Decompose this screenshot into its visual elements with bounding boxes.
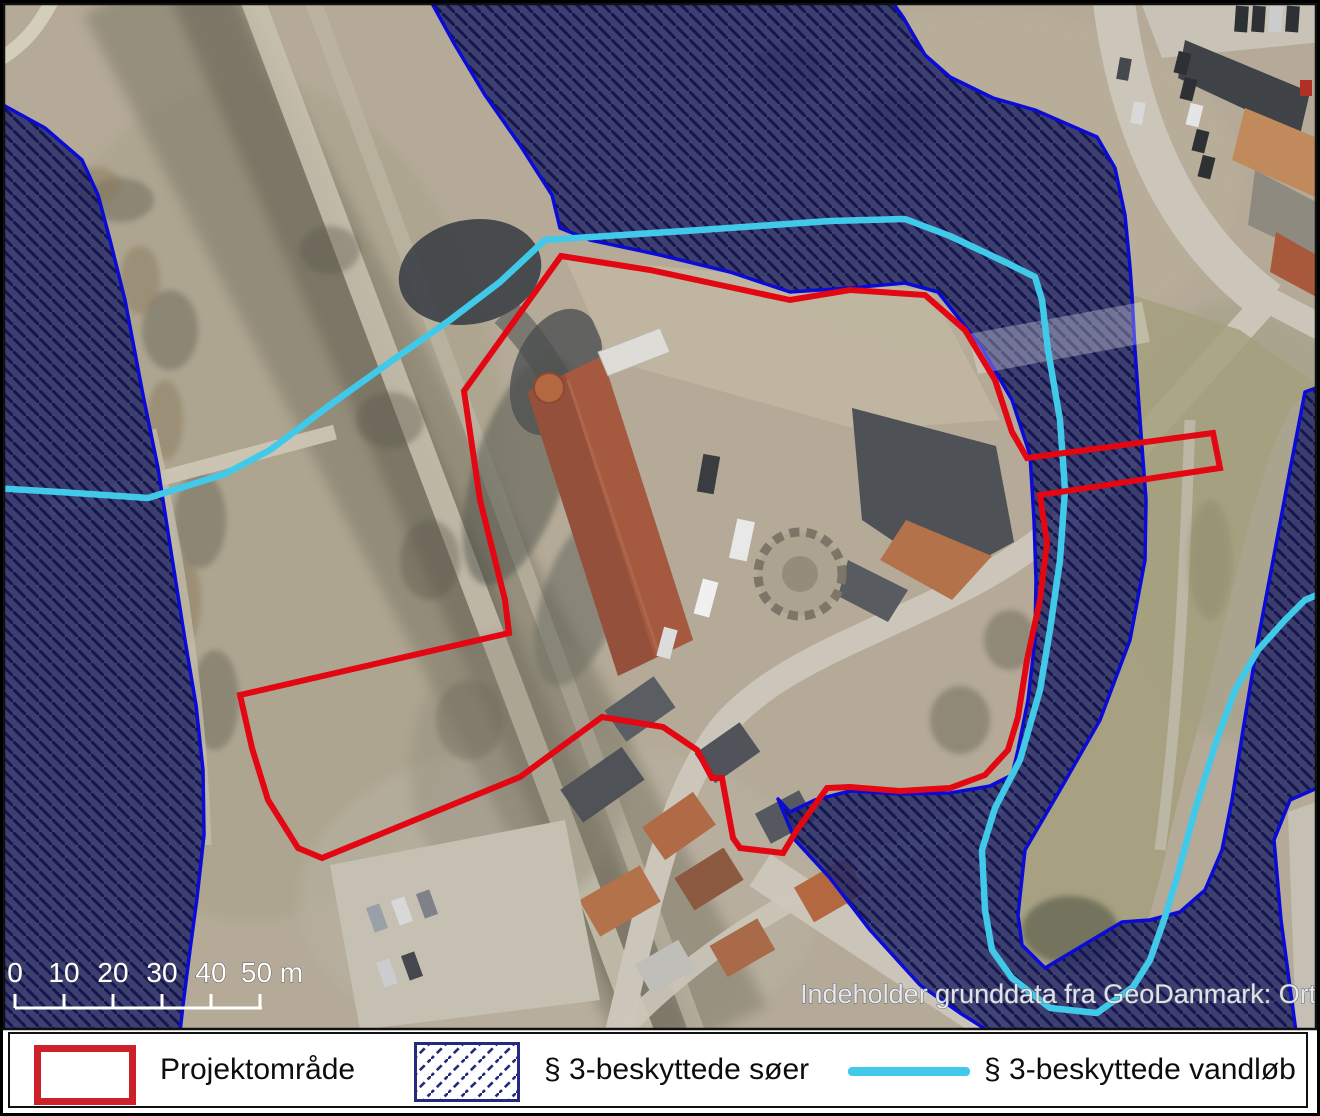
scale-label: 20 — [97, 957, 128, 988]
scale-label: 10 — [48, 957, 79, 988]
scale-label: 40 — [195, 957, 226, 988]
scale-label: 30 — [146, 957, 177, 988]
legend-label-protected-streams: § 3-beskyttede vandløb — [984, 1053, 1296, 1087]
lakes-hatch-swatch — [414, 1042, 520, 1102]
scale-label: 0 — [7, 957, 23, 988]
stream-line-swatch — [848, 1067, 970, 1076]
stone-circle — [758, 532, 842, 616]
map-figure: 0 10 20 30 40 50 m Indeholder grunddata … — [0, 0, 1320, 1116]
legend-label-protected-lakes: § 3-beskyttede søer — [544, 1053, 809, 1087]
legend: Projektområde § 3-beskyttede søer § 3-be… — [8, 1032, 1308, 1108]
legend-label-project-area: Projektområde — [160, 1053, 355, 1087]
attribution-text: Indeholder grunddata fra GeoDanmark: Ort… — [800, 979, 1320, 1009]
project-area-swatch — [34, 1045, 136, 1105]
scale-label: 50 m — [241, 957, 303, 988]
map-canvas: 0 10 20 30 40 50 m Indeholder grunddata … — [0, 0, 1320, 1116]
